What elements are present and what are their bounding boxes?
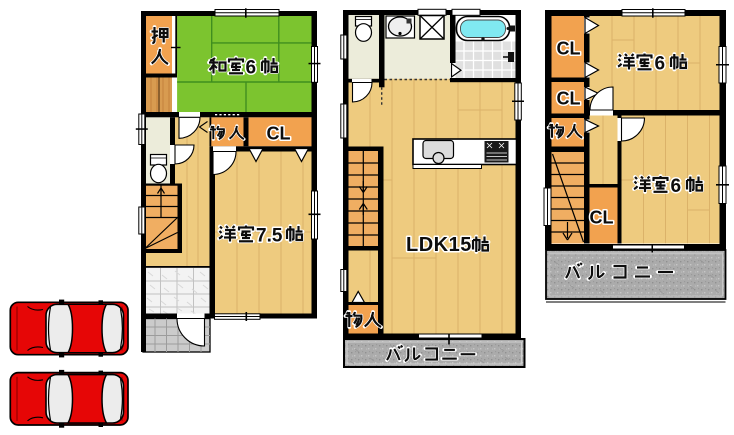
svg-text:CL: CL: [557, 89, 581, 109]
svg-text:6: 6: [655, 54, 666, 75]
svg-text:CL: CL: [590, 208, 614, 228]
svg-text:7.5: 7.5: [256, 226, 283, 247]
svg-text:LDK15: LDK15: [406, 234, 472, 256]
svg-text:CL: CL: [557, 39, 581, 59]
svg-text:6: 6: [246, 58, 257, 79]
svg-text:6: 6: [671, 176, 682, 197]
svg-text:CL: CL: [267, 124, 291, 144]
